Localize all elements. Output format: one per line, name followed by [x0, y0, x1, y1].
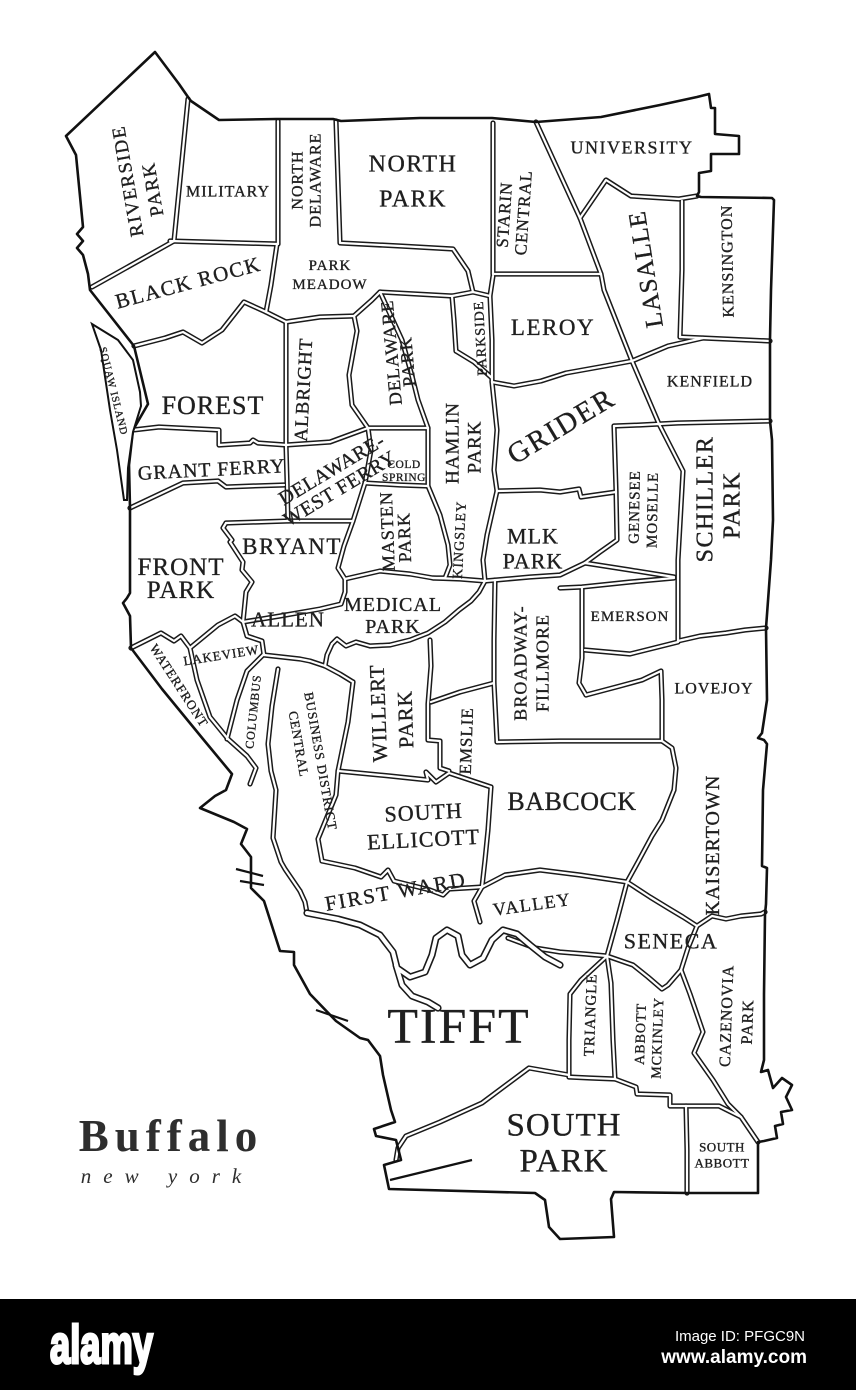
svg-text:ABBOTT: ABBOTT	[633, 1003, 650, 1065]
svg-text:UNIVERSITY: UNIVERSITY	[571, 137, 694, 157]
svg-text:MLK: MLK	[507, 524, 559, 549]
svg-text:PARK: PARK	[739, 999, 758, 1045]
svg-text:MOSELLE: MOSELLE	[645, 472, 662, 548]
svg-text:LEROY: LEROY	[511, 315, 595, 340]
svg-text:EMERSON: EMERSON	[591, 609, 670, 625]
svg-text:FOREST: FOREST	[162, 391, 265, 420]
svg-text:www.alamy.com: www.alamy.com	[660, 1347, 807, 1368]
svg-text:NORTH: NORTH	[369, 151, 458, 177]
svg-text:SOUTH: SOUTH	[384, 798, 464, 827]
svg-text:CAZENOVIA: CAZENOVIA	[717, 964, 738, 1067]
svg-text:PARK: PARK	[520, 1144, 609, 1180]
svg-text:WILLERT: WILLERT	[365, 664, 392, 763]
svg-text:TIFFT: TIFFT	[387, 998, 530, 1054]
svg-text:new york: new york	[81, 1164, 253, 1188]
svg-text:MEDICAL: MEDICAL	[344, 594, 442, 616]
svg-text:PARK: PARK	[309, 258, 352, 274]
svg-text:PARK: PARK	[393, 512, 415, 563]
svg-text:DELAWARE: DELAWARE	[308, 133, 325, 228]
svg-text:TRIANGLE: TRIANGLE	[582, 973, 601, 1057]
svg-text:PARK: PARK	[465, 421, 486, 474]
svg-text:ALLEN: ALLEN	[251, 607, 325, 631]
svg-text:SENECA: SENECA	[624, 929, 719, 954]
svg-text:PARK: PARK	[365, 616, 421, 638]
svg-text:KENFIELD: KENFIELD	[667, 374, 753, 391]
svg-text:Image ID: PFGC9N: Image ID: PFGC9N	[675, 1328, 805, 1345]
svg-text:ABBOTT: ABBOTT	[695, 1156, 750, 1171]
svg-text:SOUTH: SOUTH	[506, 1108, 621, 1144]
svg-text:SOUTH: SOUTH	[699, 1140, 745, 1155]
svg-text:SPRING: SPRING	[382, 472, 426, 484]
svg-text:PARK: PARK	[719, 471, 745, 539]
svg-text:PARK: PARK	[379, 186, 447, 212]
svg-text:COLD: COLD	[387, 459, 420, 471]
svg-text:PARK: PARK	[147, 577, 215, 604]
svg-text:PARK: PARK	[392, 690, 418, 749]
svg-text:HAMLIN: HAMLIN	[443, 402, 464, 484]
svg-text:PARK: PARK	[503, 549, 564, 574]
svg-text:MEADOW: MEADOW	[292, 277, 367, 293]
svg-text:GENESEE: GENESEE	[627, 470, 644, 544]
svg-text:BRYANT: BRYANT	[242, 534, 342, 559]
svg-text:BABCOCK: BABCOCK	[507, 787, 636, 816]
svg-text:LOVEJOY: LOVEJOY	[675, 681, 754, 698]
svg-text:NORTH: NORTH	[290, 150, 307, 209]
svg-text:MCKINLEY: MCKINLEY	[649, 997, 667, 1079]
svg-text:SCHILLER: SCHILLER	[692, 436, 718, 563]
svg-text:EMSLIE: EMSLIE	[456, 707, 477, 775]
svg-text:alamy: alamy	[50, 1315, 153, 1375]
svg-text:BROADWAY-: BROADWAY-	[510, 605, 530, 720]
svg-text:KAISERTOWN: KAISERTOWN	[702, 775, 724, 916]
svg-text:FILLMORE: FILLMORE	[532, 614, 552, 712]
svg-text:Buffalo: Buffalo	[79, 1111, 264, 1161]
svg-text:MILITARY: MILITARY	[186, 184, 270, 201]
svg-text:KENSINGTON: KENSINGTON	[719, 205, 738, 318]
